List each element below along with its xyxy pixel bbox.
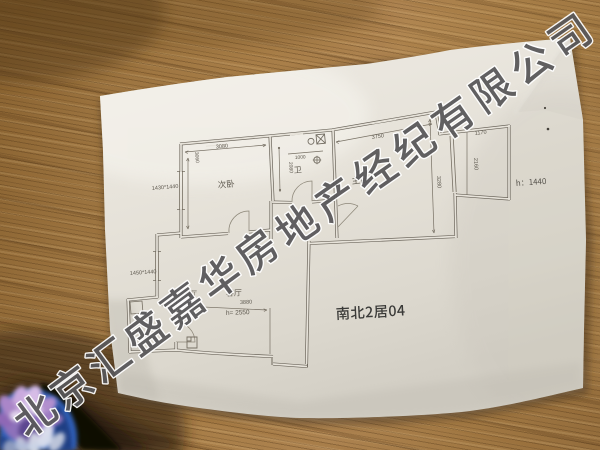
svg-text:h= 2550: h= 2550	[226, 309, 250, 317]
svg-text:2080: 2080	[287, 162, 294, 174]
svg-text:3280: 3280	[435, 176, 442, 189]
svg-text:2160: 2160	[472, 158, 479, 171]
svg-text:3880: 3880	[240, 300, 252, 306]
svg-text:3080: 3080	[216, 143, 229, 150]
svg-text:1000: 1000	[295, 154, 306, 161]
svg-text:3060: 3060	[193, 152, 200, 164]
